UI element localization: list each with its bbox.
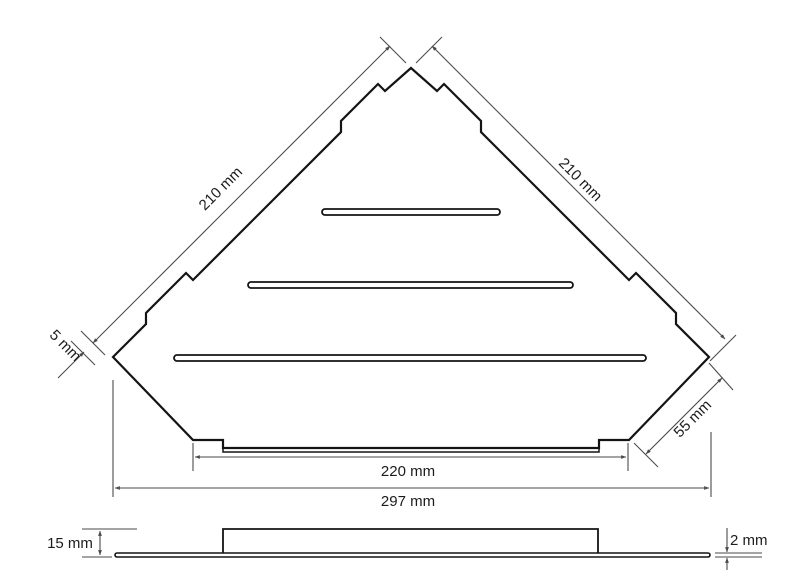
profile-raised-section xyxy=(223,529,598,553)
profile-base-plate xyxy=(115,553,710,557)
label-inner-width: 220 mm xyxy=(381,463,435,480)
drawing-stage: 210 mm 210 mm 5 mm 55 mm 220 mm 297 mm 1… xyxy=(0,0,800,570)
label-overall-width: 297 mm xyxy=(381,493,435,510)
label-thickness: 2 mm xyxy=(730,532,768,549)
technical-drawing-canvas: 210 mm 210 mm 5 mm 55 mm 220 mm 297 mm 1… xyxy=(0,0,800,570)
label-left-edge: 210 mm xyxy=(196,164,246,214)
extension-line-apex-left xyxy=(380,37,406,63)
extension-line-right-corner xyxy=(710,335,736,361)
drain-slot-top xyxy=(322,209,500,215)
label-corner-step: 5 mm xyxy=(46,327,85,366)
label-height: 15 mm xyxy=(47,535,93,552)
extension-line-cut-top xyxy=(709,363,733,390)
side-view xyxy=(115,529,710,557)
label-corner-cut: 55 mm xyxy=(671,397,715,441)
label-right-edge: 210 mm xyxy=(555,155,605,205)
drain-slot-bottom xyxy=(174,355,646,361)
side-view-dimensions xyxy=(82,528,762,570)
extension-line-apex-right xyxy=(416,37,442,63)
extension-line-cut-bottom xyxy=(634,443,658,467)
top-view xyxy=(113,68,709,452)
side-view-labels: 15 mm 2 mm xyxy=(47,532,767,552)
drain-slot-middle xyxy=(248,282,573,288)
shelf-outline xyxy=(113,68,709,448)
